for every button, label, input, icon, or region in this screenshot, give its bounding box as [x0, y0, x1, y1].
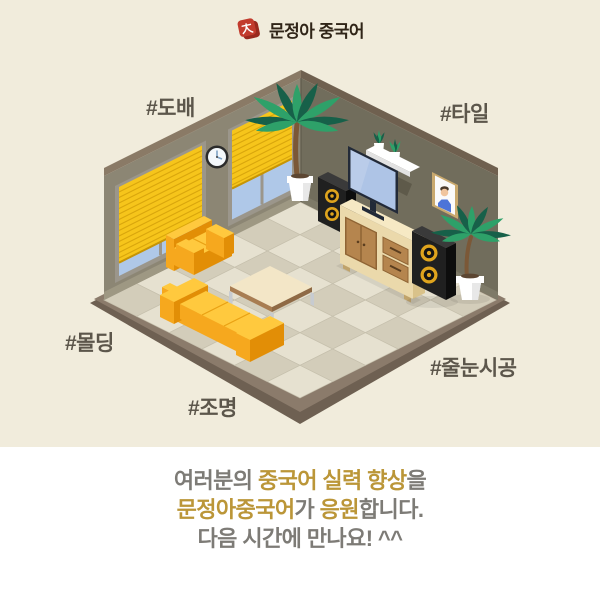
- footer-message: 여러분의 중국어 실력 향상을 문정아중국어가 응원합니다. 다음 시간에 만나…: [0, 466, 600, 553]
- footer-text-accent: 문정아중국어: [177, 497, 295, 522]
- footer-text: 합니다.: [359, 497, 423, 522]
- hashtag-grout: #줄눈시공: [430, 352, 516, 382]
- footer-text: 을: [406, 468, 426, 493]
- footer-text-accent: 응원: [320, 497, 359, 522]
- footer-line-3: 다음 시간에 만나요! ^^: [0, 524, 600, 553]
- footer-line-2: 문정아중국어가 응원합니다.: [0, 495, 600, 524]
- red-seal-stamp-icon: [236, 16, 262, 42]
- hashtag-dobae: #도배: [146, 92, 195, 122]
- footer-line-1: 여러분의 중국어 실력 향상을: [0, 466, 600, 495]
- footer-text-accent: 중국어 실력 향상: [258, 468, 407, 493]
- footer-text: 다음 시간에 만나요! ^^: [198, 526, 403, 551]
- hashtag-tile: #타일: [440, 98, 489, 128]
- brand-logo: 문정아 중국어: [0, 16, 600, 42]
- promo-card: 문정아 중국어 #도배 #타일 #몰딩 #조명 #줄눈시공 여러분의 중국어 실…: [0, 0, 600, 600]
- footer-text: 여러분의: [174, 468, 258, 493]
- brand-name: 문정아 중국어: [269, 17, 364, 42]
- wall-clock: [206, 146, 229, 169]
- footer-text: 가: [294, 497, 319, 522]
- hashtag-lighting: #조명: [188, 392, 237, 422]
- hashtag-molding: #몰딩: [65, 327, 114, 357]
